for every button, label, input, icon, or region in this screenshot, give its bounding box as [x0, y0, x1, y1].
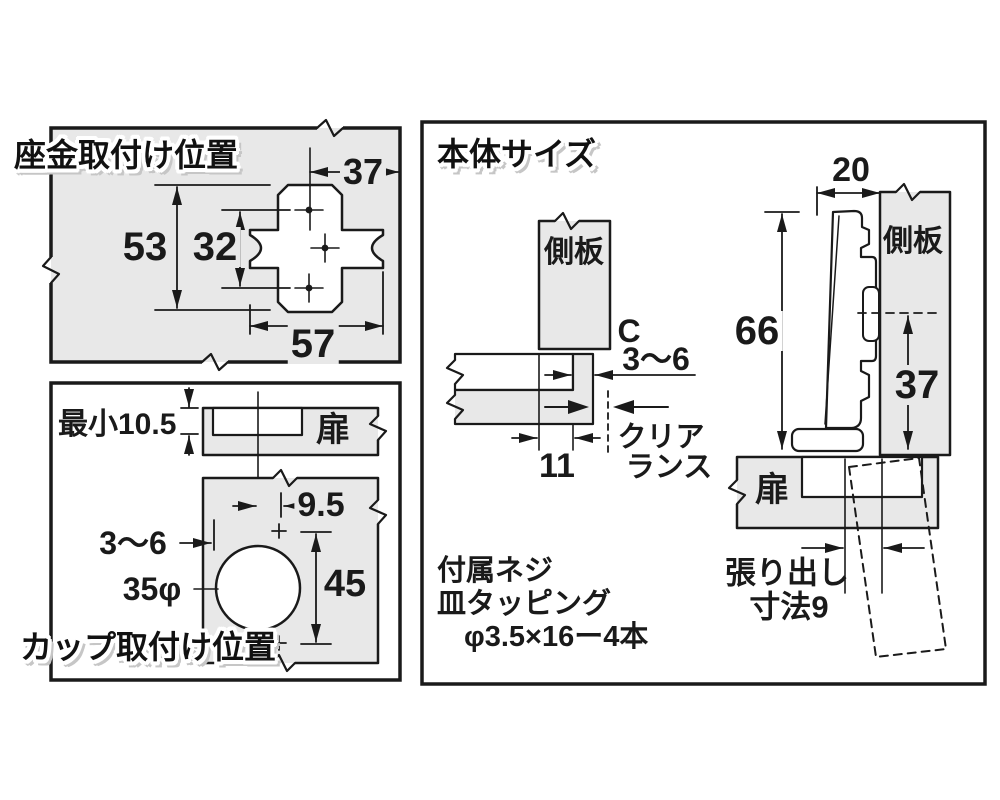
dim-9-5-label: 9.5	[294, 488, 347, 522]
dim-53-label: 53	[120, 227, 171, 267]
door-label: 扉	[316, 413, 350, 447]
dim-66-label: 66	[732, 311, 783, 351]
screw-note-line-1: 付属ネジ	[437, 557, 553, 586]
dim-3-6-label: 3〜6	[96, 527, 170, 559]
screw-note-line-3: φ3.5×16ー4本	[464, 623, 648, 652]
min-depth-label: 最小10.5	[58, 410, 176, 440]
clearance-label-1: クリア	[617, 424, 704, 453]
hinge-cup-flange	[792, 429, 863, 451]
cup-panel-title: カップ取付け位置	[20, 631, 276, 663]
cup-diameter-label: 35φ	[120, 573, 184, 605]
top-panel-section	[455, 354, 573, 390]
c-range-label: 3〜6	[622, 343, 690, 375]
side-panel-label: 側板	[544, 238, 604, 268]
dim-37-label: 37	[340, 154, 386, 190]
plate-panel-title: 座金取付け位置	[14, 139, 238, 171]
technical-drawing	[0, 0, 1000, 800]
overhang-label-2: 寸法9	[749, 592, 828, 623]
cup-recess-side	[802, 457, 922, 497]
door-label-2: 扉	[755, 473, 789, 507]
overhang-label-1: 張り出し	[725, 558, 849, 589]
side-panel-label-2: 側板	[883, 227, 943, 257]
dim-20-label: 20	[832, 153, 870, 187]
clearance-label-2: ランス	[626, 454, 712, 483]
screw-note-line-2: 皿タッピング	[437, 590, 611, 619]
cup-circle	[216, 546, 300, 630]
hinge-cam-detail	[863, 287, 879, 341]
dim-32-label: 32	[190, 227, 241, 267]
hinge-installation-diagram: 座金取付け位置 カップ取付け位置 本体サイズ 37 53 32 57 最小10.…	[0, 0, 1000, 800]
dim-57-label: 57	[288, 324, 339, 364]
body-panel-title: 本体サイズ	[437, 138, 596, 170]
dim-11-label: 11	[539, 449, 575, 483]
dim-45-label: 45	[321, 565, 369, 603]
dim-37-offset-label: 37	[892, 365, 943, 405]
